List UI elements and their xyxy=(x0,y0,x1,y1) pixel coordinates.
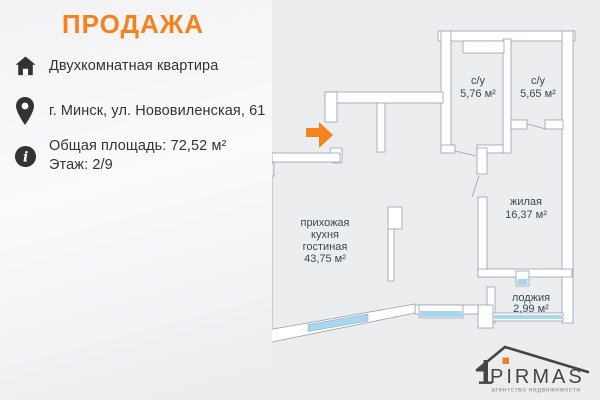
property-type-row: Двухкомнатная квартира xyxy=(13,55,218,77)
door-swings xyxy=(455,124,546,197)
listing-flyer: с/у 5,76 м² с/у 5,65 м² жилая 16,37 м² п… xyxy=(0,0,600,400)
wall xyxy=(511,120,527,129)
address-row: г. Минск, ул. Нововиленская, 61 xyxy=(13,96,265,126)
window xyxy=(518,279,528,285)
pirmas-logo: PIRMAS агентство недвижимости xyxy=(476,347,588,394)
wall xyxy=(325,92,443,103)
door-leaf xyxy=(477,148,487,174)
window xyxy=(420,311,462,317)
logo-window-icon xyxy=(503,358,510,365)
room-label-bathroom-2: с/у xyxy=(531,75,546,87)
wall xyxy=(441,145,455,153)
floor-label: Этаж: 2/9 xyxy=(49,156,226,175)
logo-brand: PIRMAS xyxy=(490,366,585,388)
wall xyxy=(377,103,385,152)
wall xyxy=(478,305,493,328)
window xyxy=(494,315,562,319)
info-panel: ПРОДАЖА Двухкомнатная квартира г. Минск,… xyxy=(0,0,272,400)
info-icon: i xyxy=(13,145,37,168)
room-label-living: жилая xyxy=(510,196,542,208)
wall xyxy=(325,92,337,122)
kitchen-partition xyxy=(388,229,394,281)
room-area-bathroom-1: 5,76 м² xyxy=(460,88,496,100)
room-label-main-2: кухня xyxy=(311,229,339,241)
location-pin-icon xyxy=(13,96,37,126)
wall xyxy=(562,31,573,323)
room-label-main-3: гостиная xyxy=(303,241,348,253)
room-area-bathroom-2: 5,65 м² xyxy=(520,88,556,100)
meta-row: i Общая площадь: 72,52 м² Этаж: 2/9 xyxy=(13,137,226,175)
wall xyxy=(503,39,511,153)
room-area-main: 43,75 м² xyxy=(304,253,346,265)
page-title: ПРОДАЖА xyxy=(0,0,266,40)
kitchen-partition xyxy=(388,207,402,229)
wall xyxy=(545,120,563,129)
door-swing-line xyxy=(472,176,479,197)
room-area-loggia: 2,99 м² xyxy=(513,303,549,315)
room-area-living: 16,37 м² xyxy=(505,209,547,221)
door-swing-line xyxy=(455,151,476,156)
room-label-bathroom-1: с/у xyxy=(471,75,486,87)
house-icon xyxy=(13,55,37,77)
entrance-arrow-icon xyxy=(306,122,333,148)
door-swing-line xyxy=(527,124,546,129)
property-type-label: Двухкомнатная квартира xyxy=(49,58,218,74)
duct-niche xyxy=(463,41,504,53)
logo-tagline: агентство недвижимости xyxy=(491,387,580,394)
svg-text:i: i xyxy=(23,149,28,165)
total-area-label: Общая площадь: 72,52 м² xyxy=(49,137,226,156)
address-label: г. Минск, ул. Нововиленская, 61 xyxy=(49,103,265,119)
meta-lines: Общая площадь: 72,52 м² Этаж: 2/9 xyxy=(49,137,226,175)
wall xyxy=(478,197,487,277)
wall xyxy=(262,153,340,162)
room-label-main-1: прихожая xyxy=(300,217,349,229)
